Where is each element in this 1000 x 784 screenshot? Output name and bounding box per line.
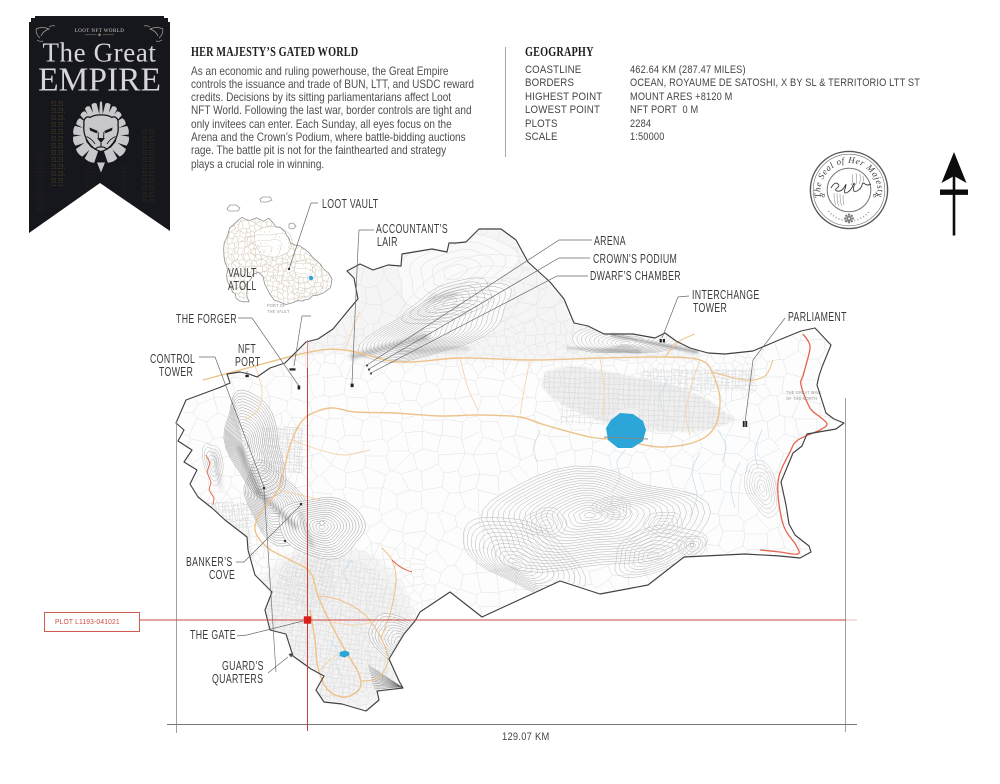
svg-text:EMPIRE: EMPIRE [38, 62, 161, 99]
svg-text:8: 8 [871, 191, 881, 198]
svg-text:LOOT NFT WORLD: LOOT NFT WORLD [75, 29, 125, 34]
